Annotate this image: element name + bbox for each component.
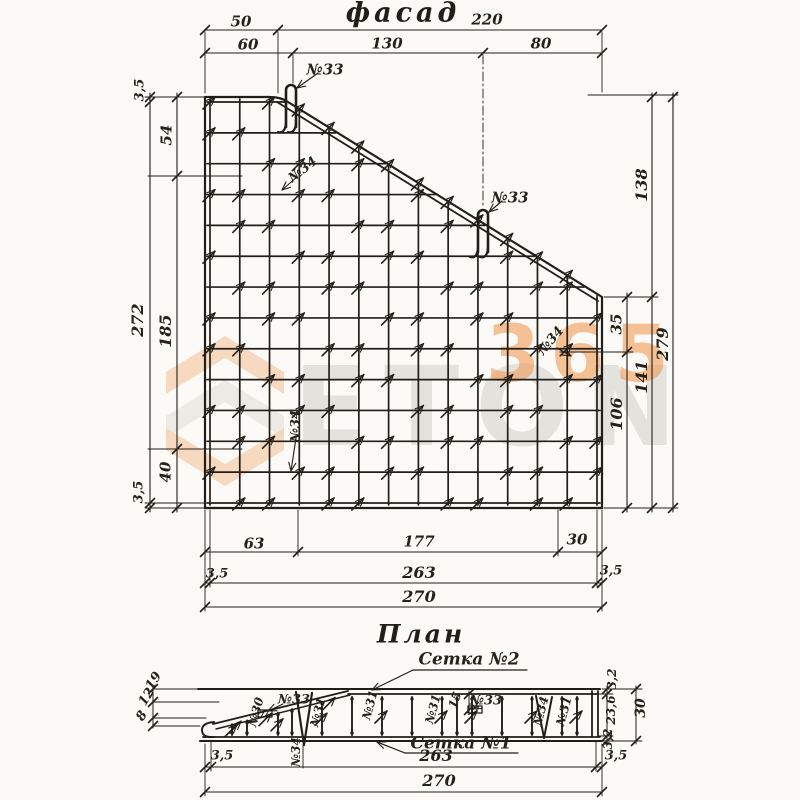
drawing-sheet: ETON 365 фасад План 5022060130803,554272… [0, 0, 800, 800]
dim-plan-right-3-2-bottom: 3,2 [602, 729, 614, 750]
dim-left-185: 185 [158, 314, 174, 347]
callout-n34-plan-right: №34 [531, 695, 550, 727]
dim-plan-right-30: 30 [634, 698, 648, 717]
dim-left-54: 54 [160, 125, 175, 146]
dim-top-60: 60 [238, 38, 259, 53]
callout-n33-plan-left: №33 [278, 694, 310, 707]
dim-left-40: 40 [159, 462, 174, 483]
dim-bottom-3-5-right: 3,5 [600, 565, 623, 578]
dim-top-80: 80 [531, 37, 552, 52]
callout-mesh-2: Сетка №2 [418, 652, 519, 669]
callout-n33-mid: №33 [491, 191, 528, 206]
dim-bottom-263: 263 [402, 565, 435, 581]
callout-n33-plan-right: №33 [470, 695, 502, 708]
dim-right-35: 35 [610, 314, 625, 335]
dim-bottom-63: 63 [244, 537, 265, 552]
dimension-labels-layer: 5022060130803,554272185403,5138352791411… [0, 0, 800, 800]
dim-bottom-3-5-left: 3,5 [206, 568, 229, 581]
dim-plan-right-3-2-top: 3,2 [606, 669, 618, 690]
dim-right-141: 141 [634, 360, 650, 393]
dim-left-3-5-bottom: 3,5 [133, 481, 146, 504]
dim-top-50: 50 [231, 15, 252, 30]
dim-plan-bottom-3-5-left: 3,5 [211, 750, 234, 763]
dim-top-130: 130 [371, 37, 402, 52]
dim-bottom-270: 270 [402, 589, 435, 605]
dim-top-220: 220 [471, 13, 502, 28]
dim-left-3-5-top: 3,5 [134, 79, 147, 102]
dim-plan-bottom-3-5-right: 3,5 [605, 750, 628, 763]
dim-bottom-177: 177 [403, 535, 434, 550]
dim-plan-15: 15 [447, 690, 464, 710]
callout-n31-2: №31 [360, 689, 379, 721]
dim-plan-left-8: 8 [134, 709, 150, 724]
dim-plan-bottom-270: 270 [422, 773, 455, 789]
dim-bottom-30: 30 [567, 533, 588, 548]
callout-n31-4: №31 [554, 695, 573, 727]
dim-right-279: 279 [655, 327, 671, 360]
callout-n30: №30 [246, 696, 265, 728]
callout-n34-lower: №34 [290, 410, 303, 442]
dim-right-138: 138 [634, 168, 650, 201]
callout-n31-3: №31 [423, 693, 442, 725]
callout-n31-1: №31 [308, 696, 327, 728]
dim-left-272: 272 [130, 303, 146, 336]
dim-plan-bottom-263: 263 [419, 748, 452, 764]
callout-n34-right: №34 [536, 324, 567, 357]
callout-n34-plan-left: №34 [290, 737, 302, 767]
dim-right-106: 106 [609, 397, 625, 430]
dim-plan-right-23-6: 23,6 [605, 695, 617, 724]
callout-n33-top: №33 [306, 63, 343, 78]
callout-n34-upper: №34 [286, 155, 319, 185]
